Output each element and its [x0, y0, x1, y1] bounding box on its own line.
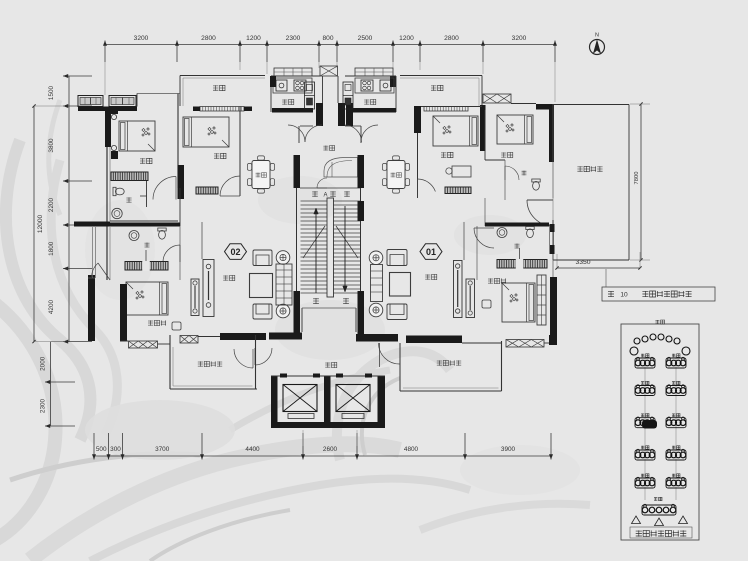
svg-text:3200: 3200 [512, 35, 527, 42]
svg-text:01: 01 [426, 247, 436, 257]
svg-text:4400: 4400 [245, 446, 260, 453]
svg-text:02: 02 [230, 247, 240, 257]
svg-text:800: 800 [322, 35, 333, 42]
svg-text:2600: 2600 [323, 446, 338, 453]
svg-text:12000: 12000 [37, 215, 44, 234]
svg-text:2800: 2800 [444, 35, 459, 42]
svg-text:N: N [595, 33, 599, 39]
svg-text:3900: 3900 [501, 446, 516, 453]
svg-text:3200: 3200 [134, 35, 149, 42]
svg-text:3800: 3800 [48, 138, 55, 153]
svg-text:4200: 4200 [48, 299, 55, 314]
svg-text:1200: 1200 [399, 35, 414, 42]
svg-text:4800: 4800 [404, 446, 419, 453]
svg-text:2300: 2300 [286, 35, 301, 42]
svg-text:2800: 2800 [201, 35, 216, 42]
svg-text:1200: 1200 [246, 35, 261, 42]
svg-text:2000: 2000 [40, 356, 47, 371]
svg-text:1500: 1500 [48, 85, 55, 100]
svg-text:300: 300 [110, 446, 121, 453]
svg-text:500: 500 [96, 446, 107, 453]
svg-text:2200: 2200 [48, 197, 55, 212]
svg-text:3700: 3700 [155, 446, 170, 453]
svg-text:2500: 2500 [358, 35, 373, 42]
svg-text:A: A [323, 193, 327, 199]
svg-text:10: 10 [620, 292, 628, 299]
svg-text:2300: 2300 [40, 398, 47, 413]
svg-text:1800: 1800 [48, 241, 55, 256]
svg-text:7800: 7800 [634, 172, 640, 185]
